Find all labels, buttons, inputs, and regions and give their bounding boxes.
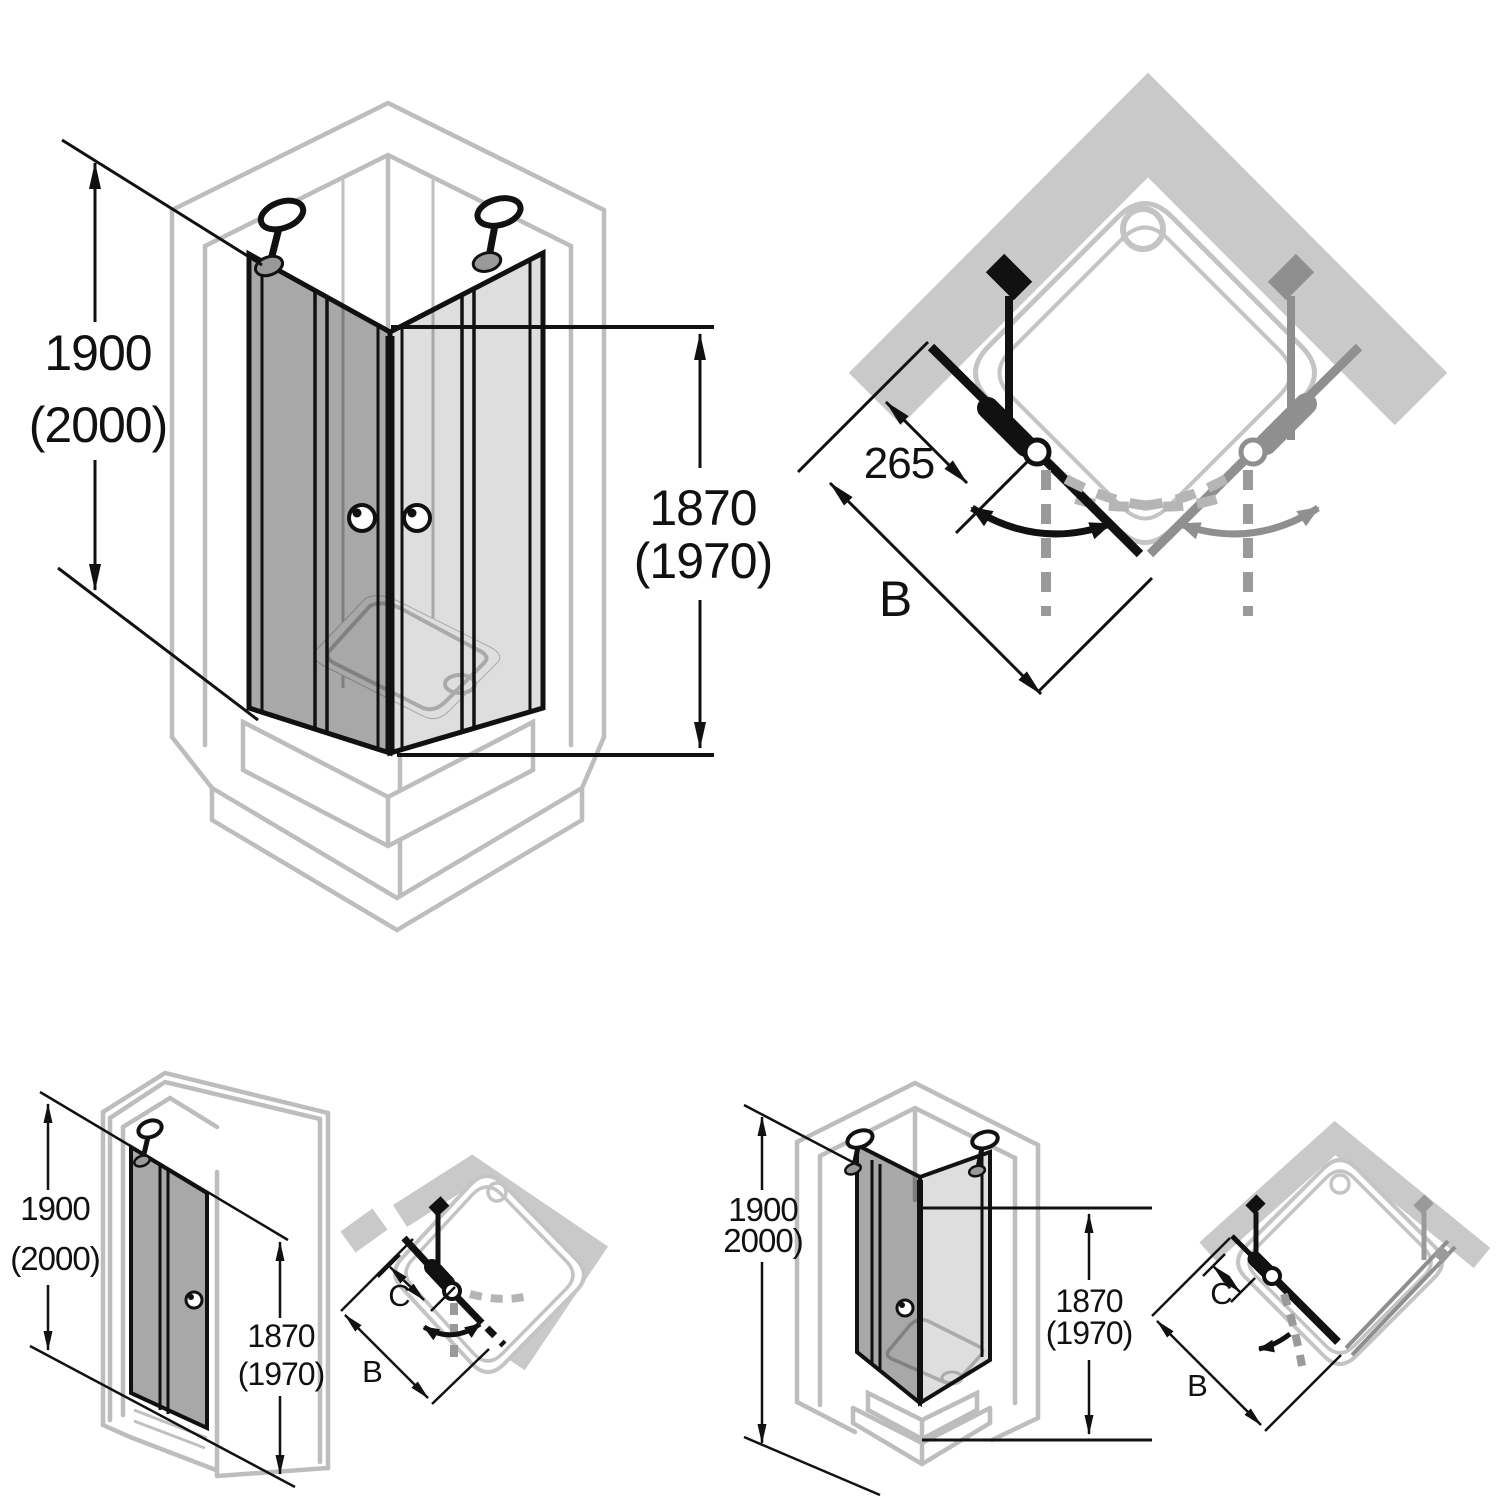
door-knob bbox=[897, 1300, 913, 1316]
dim-label-height-door-line2: (1970) bbox=[238, 1356, 325, 1392]
dim-label-height-outer-line1: 1900 bbox=[20, 1190, 90, 1227]
diagram-sheet: 1900 (2000) 1870 (1970) bbox=[0, 0, 1500, 1500]
door-knob bbox=[404, 505, 430, 531]
dim-label-width: B bbox=[1187, 1368, 1207, 1403]
pivot-pin-icon bbox=[471, 194, 523, 275]
swing-arrow-icon bbox=[1259, 1334, 1290, 1349]
door-knob bbox=[349, 505, 375, 531]
pivot-pin-icon bbox=[1250, 1199, 1261, 1210]
corner-entry-isometric-view: 1900 (2000) 1870 (1970) bbox=[29, 103, 773, 930]
wall-stub bbox=[348, 1219, 380, 1242]
dim-label-fixed-segment: C bbox=[388, 1278, 410, 1313]
corner-entry-plan-view: 265 B bbox=[798, 125, 1421, 694]
dim-label-height-outer-line2: (2000) bbox=[10, 1240, 99, 1277]
dimension-height-outer: 1900 (2000) bbox=[29, 140, 262, 720]
dim-label-fixed-segment: C bbox=[1210, 1276, 1232, 1311]
dim-label-height-door-line1: 1870 bbox=[649, 480, 756, 536]
dim-label-width: B bbox=[362, 1354, 382, 1389]
dim-label-height-door-line2: (1970) bbox=[634, 533, 773, 589]
side-panel bbox=[920, 1152, 990, 1403]
diagram-canvas: 1900 (2000) 1870 (1970) bbox=[0, 0, 1500, 1500]
dim-label-height-outer-line1: 1900 bbox=[44, 325, 151, 381]
recess-door bbox=[131, 1117, 207, 1428]
pivot-pin-icon bbox=[133, 1117, 164, 1168]
dim-label-height-outer-line2: (2000) bbox=[29, 397, 168, 453]
dim-label-fixed-segment: 265 bbox=[864, 439, 934, 488]
dimension-height-door: 1870 (1970) bbox=[238, 1242, 325, 1474]
corner-side-plan-view: C B bbox=[1152, 1138, 1482, 1431]
dim-label-width: B bbox=[879, 571, 911, 627]
dim-label-height-door-line1: 1870 bbox=[1055, 1283, 1122, 1319]
pivot-pin-icon bbox=[433, 1201, 445, 1212]
pivot-pin-icon bbox=[253, 195, 307, 279]
dim-label-height-door-line2: (1970) bbox=[1046, 1315, 1133, 1351]
recess-plan-view: C B bbox=[341, 1170, 590, 1404]
pivot-pin-icon bbox=[1418, 1199, 1429, 1210]
hinge-icon bbox=[1241, 440, 1265, 464]
corner-side-isometric-view: 1900 2000) 1870 (1970) bbox=[723, 1083, 1152, 1495]
door-knob bbox=[186, 1292, 202, 1308]
left-folding-door bbox=[249, 254, 390, 753]
dim-label-height-door-line1: 1870 bbox=[247, 1318, 314, 1354]
swing-door bbox=[857, 1145, 920, 1403]
dim-label-height-outer-line2: 2000) bbox=[723, 1222, 802, 1259]
hinge-icon bbox=[1264, 1268, 1280, 1284]
recess-isometric-view: 1900 (2000) 1870 (1970) bbox=[10, 1073, 328, 1487]
